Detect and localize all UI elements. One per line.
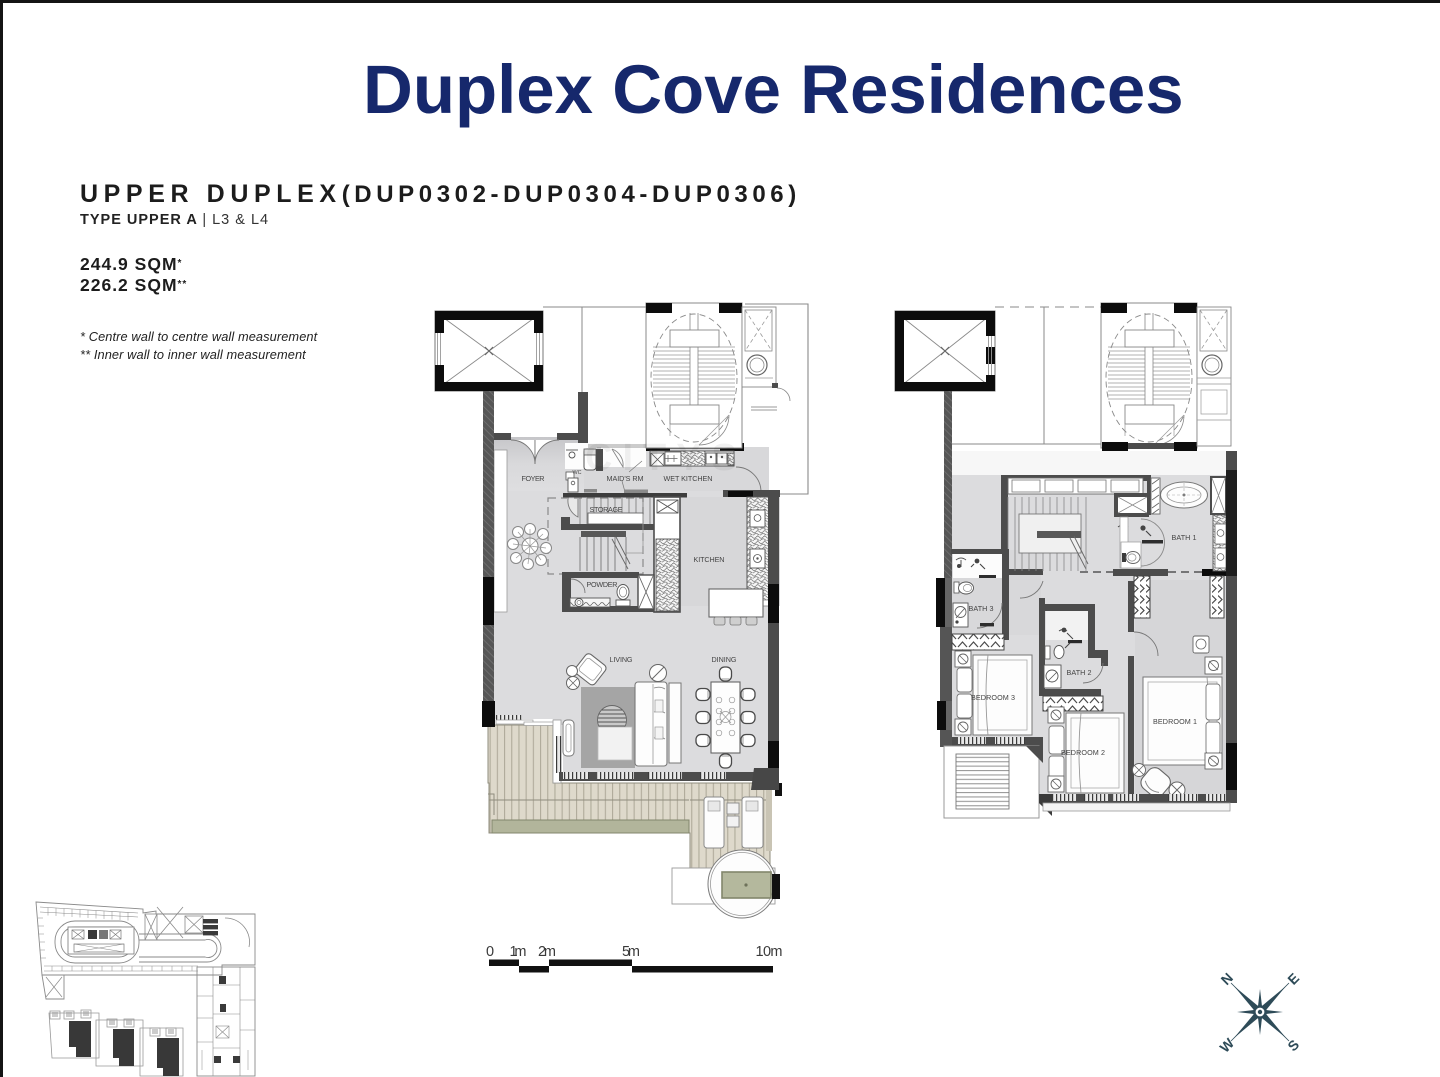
svg-text:5m: 5m bbox=[622, 944, 640, 960]
svg-text:S: S bbox=[1284, 1036, 1302, 1054]
svg-text:CITYS: CITYS bbox=[585, 437, 747, 479]
svg-text:FOYER: FOYER bbox=[522, 474, 545, 483]
svg-text:WC: WC bbox=[573, 470, 582, 476]
svg-text:1m: 1m bbox=[510, 944, 527, 960]
svg-text:KITCHEN: KITCHEN bbox=[694, 555, 725, 564]
svg-text:BATH 2: BATH 2 bbox=[1067, 668, 1092, 677]
svg-text:0: 0 bbox=[486, 944, 494, 960]
svg-text:BATH 1: BATH 1 bbox=[1172, 533, 1197, 542]
svg-text:BEDROOM 1: BEDROOM 1 bbox=[1153, 717, 1197, 726]
svg-text:STORAGE: STORAGE bbox=[590, 505, 623, 514]
svg-text:DINING: DINING bbox=[712, 655, 737, 664]
svg-text:BEDROOM 2: BEDROOM 2 bbox=[1061, 748, 1105, 757]
svg-text:2m: 2m bbox=[538, 944, 556, 960]
svg-text:POWDER: POWDER bbox=[587, 580, 618, 589]
svg-text:BEDROOM 3: BEDROOM 3 bbox=[971, 693, 1015, 702]
svg-text:BATH 3: BATH 3 bbox=[969, 604, 994, 613]
svg-text:LIVING: LIVING bbox=[610, 655, 633, 664]
svg-text:10m: 10m bbox=[756, 944, 783, 960]
